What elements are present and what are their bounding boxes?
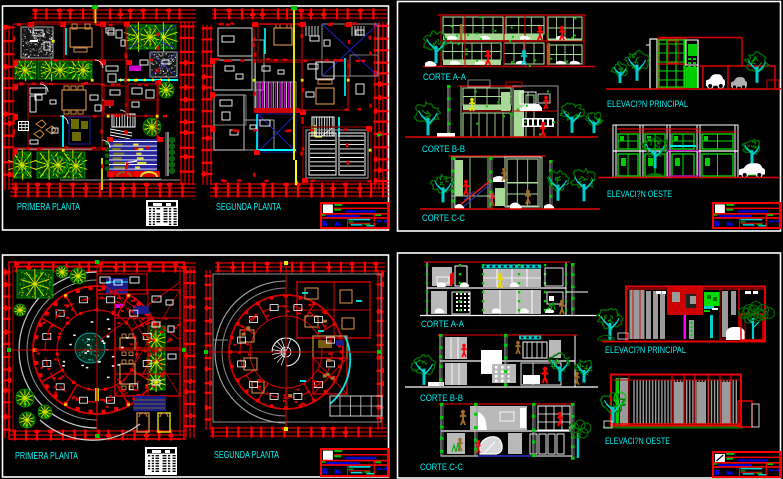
svg-text:PRIMERA PLANTA: PRIMERA PLANTA (15, 450, 78, 462)
svg-text:SEGUNDA PLANTA: SEGUNDA PLANTA (214, 449, 279, 461)
svg-text:ELEVACI?N PRINCIPAL: ELEVACI?N PRINCIPAL (605, 345, 686, 355)
svg-text:ELEVACI?N OESTE: ELEVACI?N OESTE (607, 189, 672, 199)
svg-text:CORTE A-A: CORTE A-A (421, 319, 464, 329)
svg-text:CORTE B-B: CORTE B-B (422, 144, 465, 154)
svg-text:CORTE C-C: CORTE C-C (422, 213, 465, 223)
svg-text:CORTE A-A: CORTE A-A (423, 72, 466, 82)
svg-text:SEGUNDA PLANTA: SEGUNDA PLANTA (216, 201, 281, 213)
svg-text:ELEVACI?N OESTE: ELEVACI?N OESTE (605, 436, 670, 446)
svg-text:PRIMERA PLANTA: PRIMERA PLANTA (17, 201, 80, 213)
svg-text:CORTE B-B: CORTE B-B (420, 393, 463, 403)
svg-text:ELEVACI?N PRINCIPAL: ELEVACI?N PRINCIPAL (607, 99, 688, 109)
svg-text:CORTE C-C: CORTE C-C (420, 462, 463, 472)
